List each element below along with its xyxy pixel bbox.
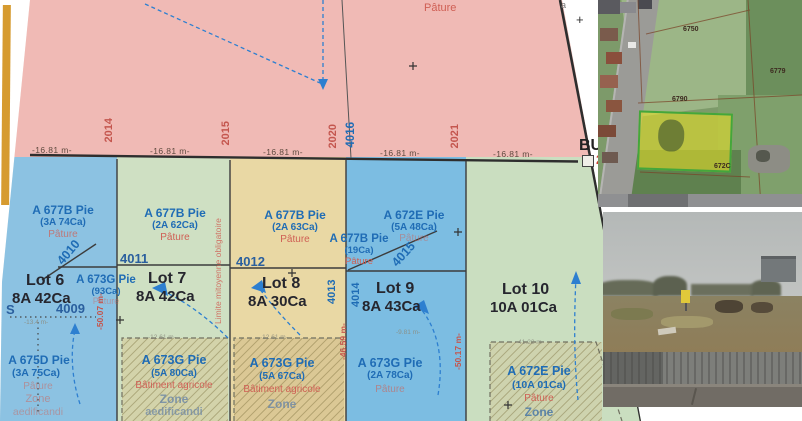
small-measure: -41.22 m- <box>516 340 544 347</box>
grass-patch <box>661 316 713 328</box>
aerial-parcel-6750: 6750 <box>683 26 699 33</box>
aerial-bottom-bar-dark <box>628 194 688 207</box>
measure-top-3: -16.81 m- <box>263 148 303 157</box>
gravel-dark-area <box>603 352 663 384</box>
page-edge-orange-strip <box>1 5 11 205</box>
parcel-landuse: Pâture <box>498 394 580 405</box>
grass-patch <box>611 308 653 320</box>
point-4011: 4011 <box>120 252 148 266</box>
parcel-landuse: Pâture <box>344 385 436 396</box>
parcel-area: (3A 75Ca) <box>0 368 72 379</box>
parcel-ref: A 673G Pie <box>70 274 142 286</box>
pasture-label-top: Pâture <box>424 3 456 15</box>
aerial-bottom-bar <box>598 194 802 207</box>
parcel-area: (2A 62Ca) <box>132 221 218 232</box>
small-measure: -12.61 m- <box>148 335 176 342</box>
aerial-parcel-6790: 6790 <box>672 96 688 103</box>
point-4013: 4013 <box>327 270 339 304</box>
dashed-blue-arrows <box>72 0 578 404</box>
parcel-ref: A 672E Pie <box>370 209 458 222</box>
frame-number-4016: 4016 <box>345 122 357 148</box>
parcel-landuse: Pâture <box>20 230 106 241</box>
lot9-area: 8A 43Ca <box>362 299 421 315</box>
side-measure-5017: -50.17 m- <box>454 306 463 370</box>
dirt-mound <box>715 300 743 313</box>
edge-letter-a: a <box>561 1 566 10</box>
point-4009: 4009 <box>56 302 85 316</box>
parcel-area: (10A 01Ca) <box>498 380 580 391</box>
parcel-ref: A 677B Pie <box>132 207 218 220</box>
parcel-area: (2A 78Ca) <box>344 371 436 382</box>
lot6-label: Lot 6 <box>26 273 64 290</box>
asphalt-road <box>603 384 802 407</box>
ground-photo <box>603 212 802 407</box>
parcel-area: (5A 80Ca) <box>130 369 218 380</box>
aerial-boundaries <box>598 0 802 207</box>
zone-label: Zone <box>498 406 580 419</box>
zone-label2: aedificandi <box>0 407 76 418</box>
measure-top-2: -16.81 m- <box>150 147 190 156</box>
treeline <box>603 280 658 296</box>
frame-number-2014: 2014 <box>104 118 116 142</box>
parcel-area: (5A 48Ca) <box>370 223 458 234</box>
lot8-area: 8A 30Ca <box>248 294 307 310</box>
parcel-landuse: Pâture <box>322 257 396 267</box>
parcel-ref: A 672E Pie <box>498 365 580 378</box>
parcel-area: (19Ca) <box>322 246 396 256</box>
treeline <box>691 284 753 296</box>
parcel-landuse: Pâture <box>132 233 218 244</box>
frame-number-2021: 2021 <box>450 124 462 148</box>
lot7-area: 8A 42Ca <box>136 289 195 305</box>
aerial-parcel-672c: 672C <box>714 163 731 170</box>
parcel-landuse: Pâture <box>8 382 68 393</box>
tree-blob <box>658 119 685 152</box>
parcel-ref: A 673G Pie <box>130 354 218 367</box>
dirt-mound <box>751 302 773 313</box>
rubble-patch <box>756 150 770 162</box>
screenshot-root: { "plan": { "pasture_top": "Pâture", "to… <box>0 0 802 421</box>
treeline <box>751 280 781 296</box>
frame-number-2020: 2020 <box>328 124 340 148</box>
parcel-area: (3A 74Ca) <box>20 218 106 229</box>
parcel-landuse: Bâtiment agricole <box>126 381 222 392</box>
point-4014: 4014 <box>351 273 363 307</box>
small-measure: -12.61 m- <box>260 335 288 342</box>
parcel-ref: A 677B Pie <box>252 209 338 222</box>
parcel-landuse: Bâtiment agricole <box>232 385 332 396</box>
frame-number-2015: 2015 <box>221 121 233 145</box>
point-4012: 4012 <box>236 255 265 269</box>
yellow-sign <box>681 290 690 303</box>
lot10-area: 10A 01Ca <box>490 300 557 316</box>
small-measure: -13.4 m- <box>24 320 48 327</box>
lot7-label: Lot 7 <box>148 271 186 288</box>
parcel-ref: A 677B Pie <box>20 204 106 217</box>
cadastral-plan-sheet: Pâture -16.81 m- -16.81 m- -16.81 m- -16… <box>0 0 646 421</box>
measure-top-5: -16.81 m- <box>493 150 533 159</box>
parcel-ref: A 677B Pie <box>322 233 396 245</box>
parcel-ref: A 673G Pie <box>344 357 436 370</box>
aerial-photo: 6750 6779 6790 672C <box>598 0 802 207</box>
parcel-ref: A 675D Pie <box>0 354 78 367</box>
zone-label: Zone <box>10 394 66 406</box>
sign-post <box>685 303 687 311</box>
parcel-ref: A 673G Pie <box>236 357 328 370</box>
survey-cross-outside: + <box>576 13 584 27</box>
small-measure: -9.81 m- <box>396 330 420 337</box>
zone-label2: aedificandi <box>126 407 222 419</box>
measure-top-1: -16.81 m- <box>32 146 72 155</box>
measure-top-4: -16.81 m- <box>380 149 420 158</box>
parcel-area: (5A 67Ca) <box>236 372 328 383</box>
aerial-parcel-6779: 6779 <box>770 68 786 75</box>
lot9-label: Lot 9 <box>376 281 414 298</box>
zone-label: Zone <box>130 393 218 406</box>
side-measure-5007: -50.07 m- <box>96 268 105 330</box>
edge-square-symbol <box>582 155 594 167</box>
limit-note: Limite mitoyenne obligatoire <box>214 210 223 324</box>
side-measure-4659: -46.59 m- <box>339 298 348 360</box>
zone-label: Zone <box>240 398 324 411</box>
parcel-area: (2A 63Ca) <box>252 223 338 234</box>
lot8-label: Lot 8 <box>262 276 300 293</box>
shed-building <box>761 256 796 282</box>
edge-letter-s: S <box>6 303 15 317</box>
lot10-label: Lot 10 <box>502 282 549 299</box>
